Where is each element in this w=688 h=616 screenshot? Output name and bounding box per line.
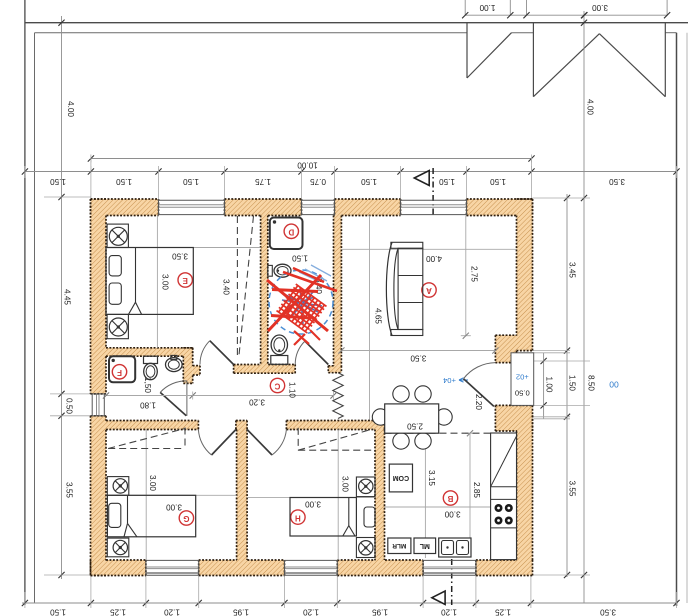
svg-text:1.95: 1.95 — [233, 607, 249, 616]
svg-text:3.00: 3.00 — [340, 476, 349, 492]
svg-text:C: C — [274, 382, 280, 391]
svg-text:3.00: 3.00 — [160, 274, 169, 290]
svg-text:1.50: 1.50 — [116, 177, 132, 186]
svg-text:00: 00 — [609, 379, 619, 389]
svg-text:2.85: 2.85 — [472, 482, 481, 498]
svg-text:1.75: 1.75 — [255, 177, 271, 186]
svg-text:1.10: 1.10 — [287, 382, 296, 398]
svg-text:1.80: 1.80 — [140, 400, 156, 409]
svg-text:2.20: 2.20 — [474, 394, 483, 410]
svg-text:0.50: 0.50 — [64, 398, 73, 414]
svg-text:1.50: 1.50 — [292, 253, 308, 262]
svg-text:4.00: 4.00 — [585, 99, 594, 115]
svg-text:4.45: 4.45 — [62, 289, 71, 305]
svg-text:1.50: 1.50 — [50, 177, 66, 186]
svg-text:3.50: 3.50 — [600, 607, 616, 616]
svg-text:H: H — [295, 513, 301, 522]
svg-text:3.45: 3.45 — [567, 262, 576, 278]
svg-text:3.50: 3.50 — [172, 252, 188, 261]
svg-text:1.00: 1.00 — [479, 3, 495, 12]
svg-text:4.00: 4.00 — [426, 254, 442, 263]
svg-text:1.25: 1.25 — [110, 607, 126, 616]
svg-text:3.20: 3.20 — [249, 397, 265, 406]
svg-text:COM: COM — [393, 474, 410, 481]
svg-text:3.00: 3.00 — [166, 502, 182, 511]
svg-text:3.55: 3.55 — [567, 481, 576, 497]
svg-text:2.75: 2.75 — [469, 266, 478, 282]
svg-text:A: A — [426, 286, 432, 295]
svg-text:10.00: 10.00 — [297, 161, 318, 170]
svg-text:3.50: 3.50 — [609, 177, 625, 186]
svg-text:0.50: 0.50 — [515, 388, 530, 397]
svg-text:1.50: 1.50 — [567, 375, 576, 391]
svg-text:2.50: 2.50 — [407, 421, 423, 430]
svg-text:B: B — [447, 494, 453, 503]
svg-text:3.00: 3.00 — [444, 509, 460, 518]
svg-text:1.20: 1.20 — [303, 607, 319, 616]
svg-text:1.20: 1.20 — [441, 607, 457, 616]
svg-text:1.20: 1.20 — [164, 607, 180, 616]
svg-text:4.00: 4.00 — [66, 101, 75, 117]
svg-text:1.50: 1.50 — [490, 177, 506, 186]
svg-text:MLR: MLR — [392, 542, 406, 549]
svg-text:ML: ML — [419, 542, 430, 549]
svg-text:G: G — [183, 514, 189, 523]
svg-text:3.00: 3.00 — [305, 500, 321, 509]
svg-text:D: D — [288, 227, 294, 236]
svg-text:8.50: 8.50 — [586, 375, 595, 391]
svg-text:4.65: 4.65 — [373, 308, 382, 324]
svg-text:1.00: 1.00 — [545, 377, 554, 393]
svg-text:+04: +04 — [443, 376, 456, 385]
svg-text:1.50: 1.50 — [361, 177, 377, 186]
svg-text:3.50: 3.50 — [410, 353, 426, 362]
svg-text:1.25: 1.25 — [495, 607, 511, 616]
svg-text:1.50: 1.50 — [50, 607, 66, 616]
svg-text:3.55: 3.55 — [64, 482, 73, 498]
svg-text:1.95: 1.95 — [372, 607, 388, 616]
svg-text:E: E — [182, 276, 188, 285]
svg-text:3.40: 3.40 — [221, 279, 230, 295]
svg-text:0.75: 0.75 — [310, 177, 326, 186]
svg-text:1.50: 1.50 — [183, 177, 199, 186]
svg-text:3.00: 3.00 — [148, 475, 157, 491]
svg-text:F: F — [117, 368, 122, 377]
svg-text:1.50: 1.50 — [439, 177, 455, 186]
svg-text:3.15: 3.15 — [427, 470, 436, 486]
svg-text:+02: +02 — [516, 372, 529, 381]
svg-text:3.00: 3.00 — [592, 3, 608, 12]
